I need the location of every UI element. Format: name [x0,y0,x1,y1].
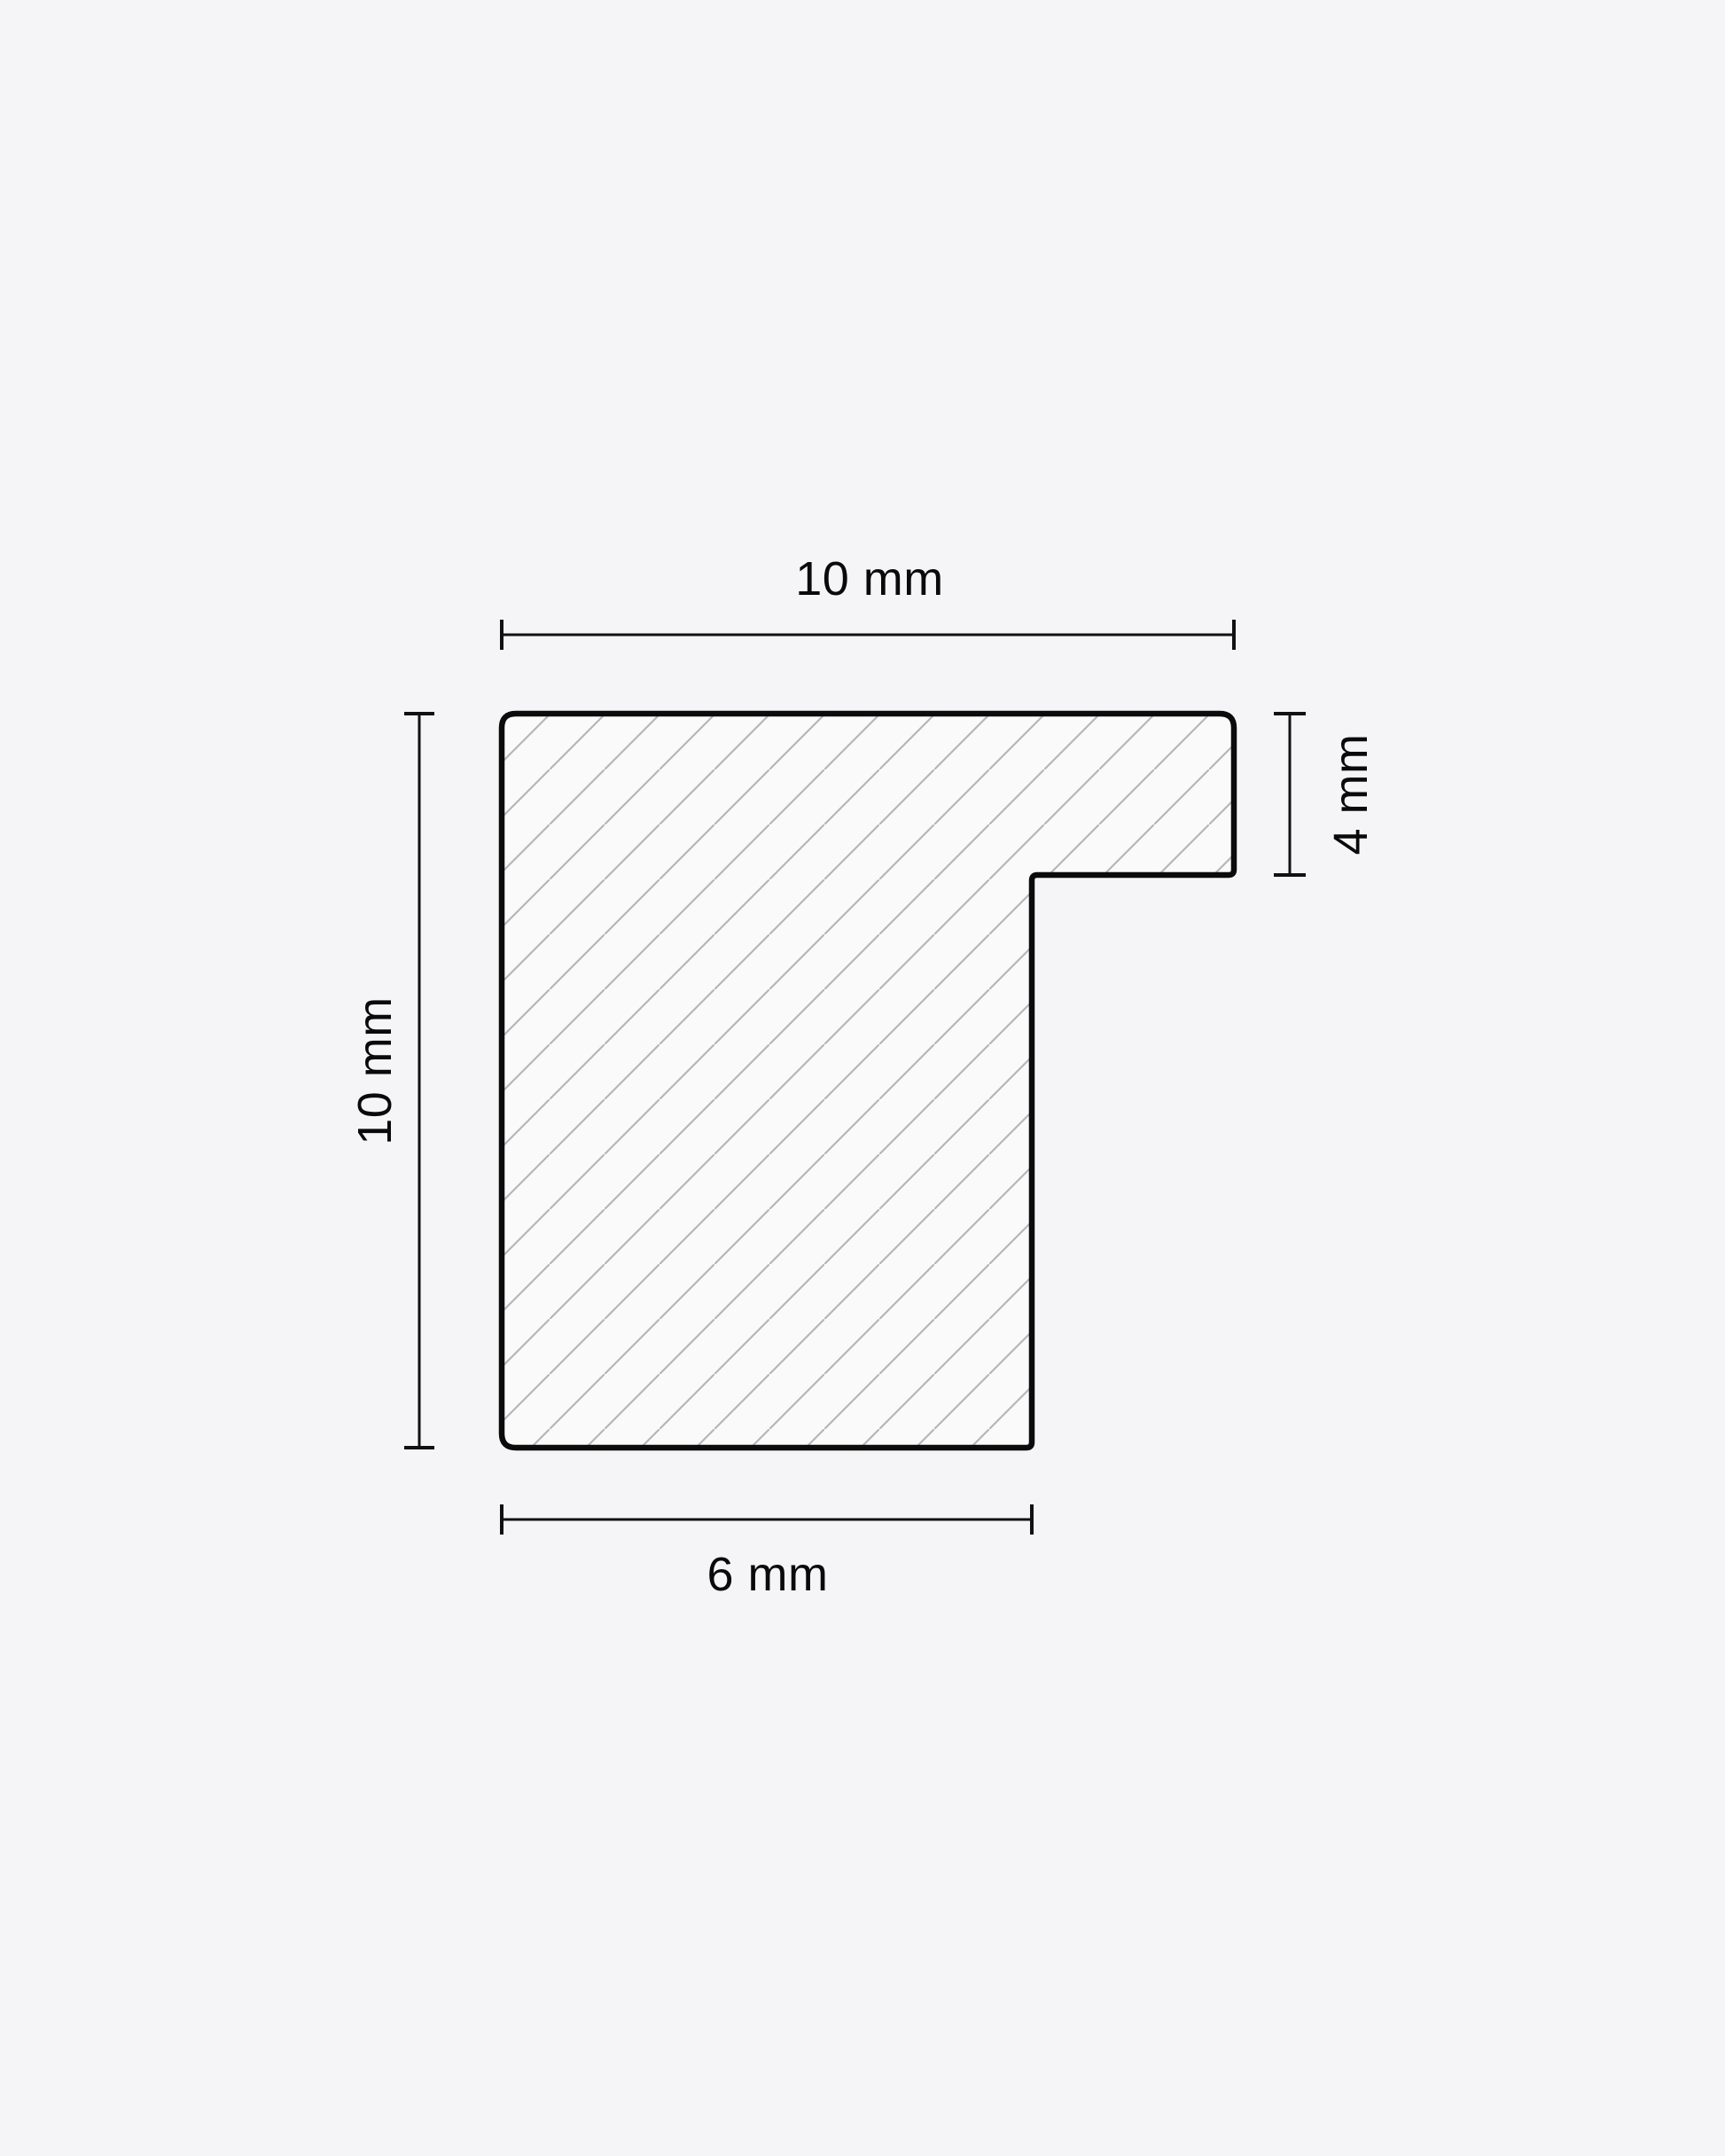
dimension-label-top: 10 mm [795,555,944,603]
top-dimension-line [502,620,1234,650]
dimension-label-bottom: 6 mm [707,1551,829,1598]
dimension-label-left: 10 mm [351,996,399,1145]
diagram-canvas: 10 mm 10 mm 4 mm 6 mm [0,0,1725,2156]
profile-drawing [0,0,1725,2156]
dimension-label-right: 4 mm [1327,734,1375,855]
bottom-dimension-line [502,1504,1032,1535]
right-dimension-line [1274,714,1306,875]
profile-cross-section-shape [502,714,1234,1448]
left-dimension-line [404,714,434,1448]
